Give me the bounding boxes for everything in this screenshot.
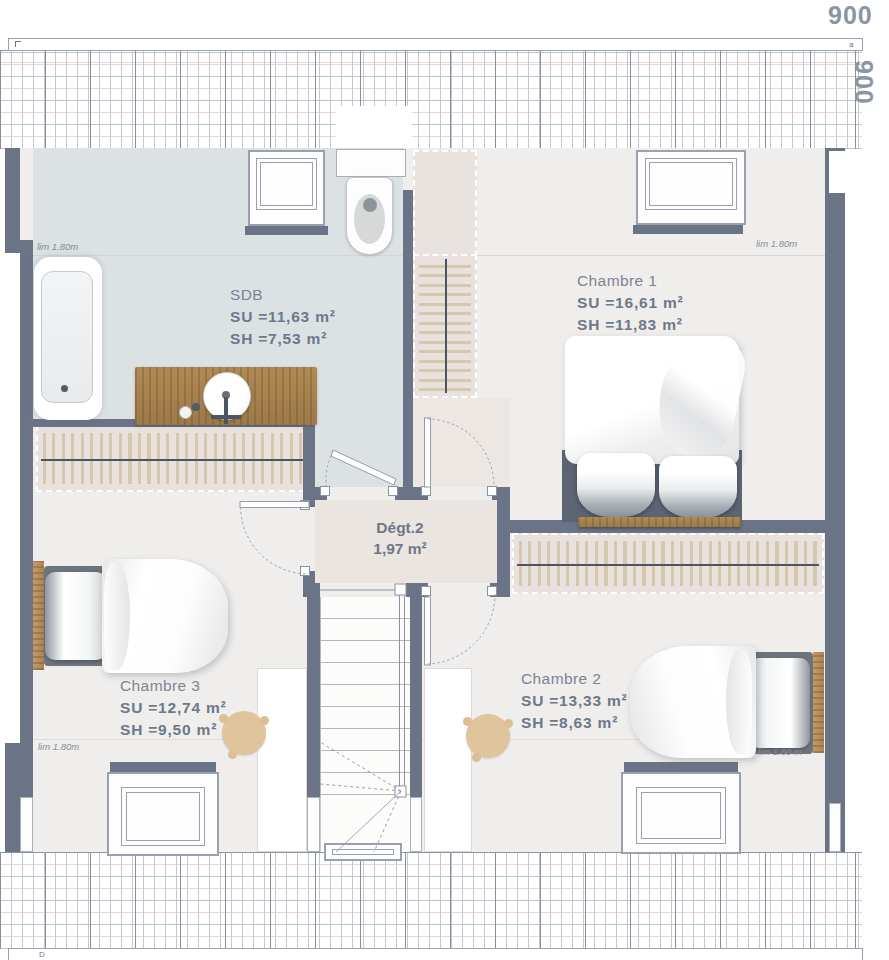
door-swing-chambre3 — [241, 507, 309, 574]
room-su: SU =12,74 m² — [120, 697, 227, 719]
door-leaf-chambre3 — [240, 502, 309, 508]
room-label-sdb: SDB SU =11,63 m² SH =7,53 m² — [230, 284, 336, 350]
room-su: SU =13,33 m² — [521, 690, 628, 712]
room-name: Chambre 2 — [521, 668, 628, 690]
room-label-chambre2: Chambre 2 SU =13,33 m² SH =8,63 m² — [521, 668, 628, 734]
room-area: 1,97 m² — [340, 538, 460, 559]
room-su: SU =16,61 m² — [577, 292, 684, 314]
room-name: Chambre 3 — [120, 675, 227, 697]
room-label-chambre3: Chambre 3 SU =12,74 m² SH =9,50 m² — [120, 675, 227, 741]
height-limit-label: lim 1.80m — [756, 238, 797, 249]
room-sh: SH =9,50 m² — [120, 719, 227, 741]
room-sh: SH =8,63 m² — [521, 712, 628, 734]
room-name: Dégt.2 — [340, 517, 460, 538]
room-sh: SH =7,53 m² — [230, 328, 336, 350]
room-label-chambre1: Chambre 1 SU =16,61 m² SH =11,83 m² — [577, 270, 684, 336]
floor-plan-canvas: a D 900 900 — [0, 0, 889, 960]
door-leaf-chambre1 — [425, 418, 431, 487]
room-name: Chambre 1 — [577, 270, 684, 292]
stair-winder — [320, 742, 401, 791]
room-sh: SH =11,83 m² — [577, 314, 684, 336]
height-limit-label: lim 1.80m — [37, 241, 78, 252]
railing-post — [395, 584, 406, 595]
doors-and-stairs-overlay — [0, 0, 889, 960]
stair-winder — [374, 791, 401, 852]
stair-winder — [336, 791, 401, 852]
height-limit-label: lim 1.80 m — [758, 746, 802, 757]
room-label-degt2: Dégt.2 1,97 m² — [340, 517, 460, 559]
door-leaf-sdb — [331, 450, 396, 485]
door-swing-chambre1 — [428, 419, 495, 486]
stair-winder — [320, 784, 401, 791]
door-leaf-chambre2 — [425, 597, 431, 665]
door-swing-chambre2 — [428, 594, 496, 664]
room-name: SDB — [230, 284, 336, 306]
room-su: SU =11,63 m² — [230, 306, 336, 328]
height-limit-label: lim 1.80m — [38, 741, 79, 752]
